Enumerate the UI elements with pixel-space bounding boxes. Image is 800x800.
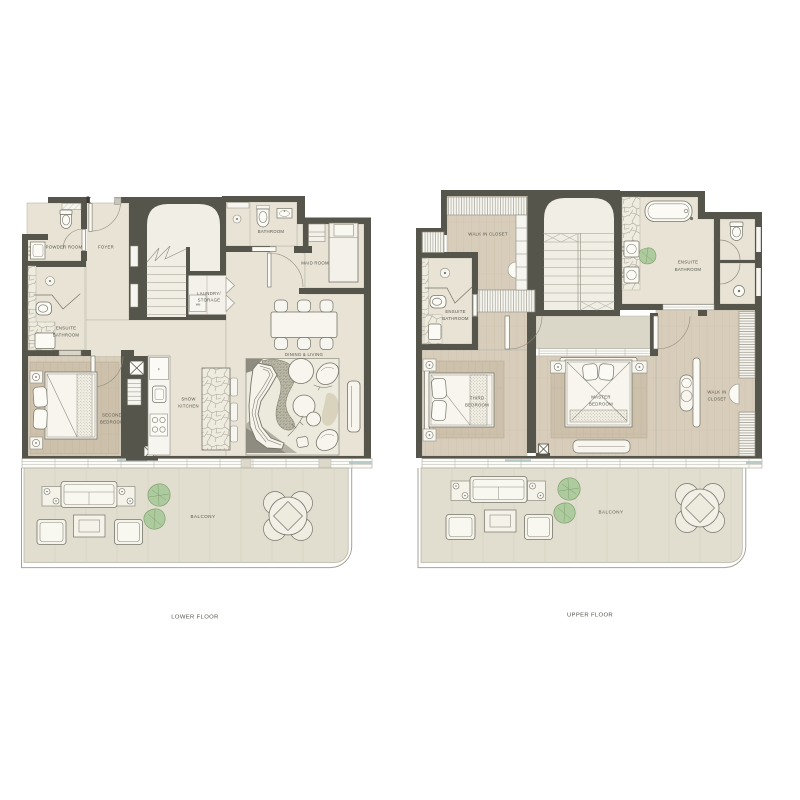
svg-text:MAID ROOM: MAID ROOM — [301, 261, 329, 266]
svg-text:STORAGE: STORAGE — [198, 298, 221, 303]
svg-text:ENSUITE: ENSUITE — [56, 326, 76, 331]
svg-text:BEDROOM: BEDROOM — [589, 402, 613, 407]
svg-text:POWDER ROOM: POWDER ROOM — [46, 245, 83, 250]
svg-text:LOWER FLOOR: LOWER FLOOR — [171, 615, 218, 621]
svg-text:FOYER: FOYER — [98, 245, 114, 250]
svg-text:CLOSET: CLOSET — [708, 397, 727, 402]
svg-text:ENSUITE: ENSUITE — [445, 309, 465, 314]
svg-text:BATHROOM: BATHROOM — [442, 316, 469, 321]
svg-text:WALK IN: WALK IN — [707, 390, 726, 395]
svg-text:LAUNDRY/: LAUNDRY/ — [197, 291, 221, 296]
svg-text:BATHROOM: BATHROOM — [258, 229, 285, 234]
svg-text:1-000-A: 1-000-A — [423, 455, 432, 459]
svg-text:BATHROOM: BATHROOM — [675, 267, 702, 272]
svg-text:WALK IN CLOSET: WALK IN CLOSET — [468, 232, 508, 237]
svg-text:F: F — [158, 368, 160, 372]
svg-text:BALCONY: BALCONY — [598, 510, 623, 515]
svg-text:THIRD: THIRD — [470, 396, 484, 401]
svg-text:BEDROOM: BEDROOM — [100, 420, 124, 425]
svg-text:BEDROOM: BEDROOM — [465, 403, 489, 408]
svg-text:ENSUITE: ENSUITE — [678, 260, 698, 265]
svg-text:1-000-A: 1-000-A — [25, 455, 34, 459]
svg-text:UPPER FLOOR: UPPER FLOOR — [567, 613, 613, 619]
svg-text:BALCONY: BALCONY — [190, 514, 215, 519]
svg-text:SHOW: SHOW — [181, 397, 196, 402]
svg-text:KITCHEN: KITCHEN — [178, 404, 199, 409]
svg-text:MASTER: MASTER — [591, 395, 610, 400]
svg-text:4-000: 4-000 — [700, 455, 707, 459]
svg-text:4-000: 4-000 — [348, 455, 355, 459]
svg-text:SECOND: SECOND — [102, 413, 122, 418]
svg-text:WM: WM — [196, 303, 201, 307]
svg-text:DINING & LIVING: DINING & LIVING — [285, 352, 324, 357]
svg-text:BATHROOM: BATHROOM — [53, 333, 80, 338]
